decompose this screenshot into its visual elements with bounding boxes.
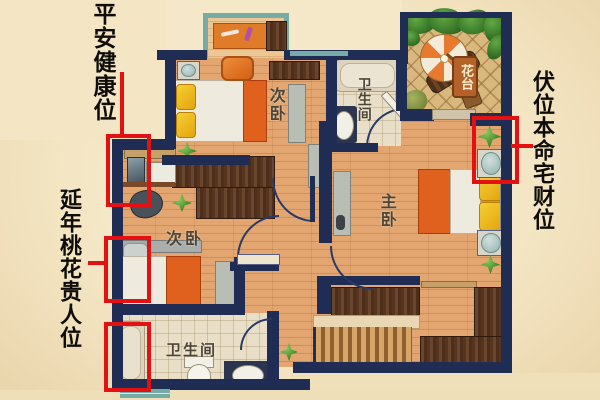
wall	[402, 12, 509, 18]
window	[290, 51, 348, 56]
annotation-box-romance-2	[104, 322, 151, 392]
feng-shui-floorplan-image: 次卧 次卧 主卧 卫生间 卫生间 花台 平安健康位 延年桃花贵人位 伏位本命宅财…	[0, 0, 600, 400]
balcony-wall	[203, 13, 289, 18]
wall	[165, 50, 176, 149]
wall	[112, 304, 245, 315]
room-label-bathroom-top: 卫生间	[356, 77, 371, 122]
railing	[421, 281, 477, 288]
wall	[317, 276, 331, 314]
toilet-bowl	[334, 111, 354, 140]
dresser-knob	[336, 215, 345, 230]
desk	[196, 187, 275, 219]
bed-pillow	[176, 84, 196, 110]
callout-top-left: 平安健康位	[90, 2, 113, 122]
balcony-cabinet	[266, 21, 287, 51]
annotation-box-wealth	[472, 116, 519, 184]
wall	[162, 155, 250, 165]
room-label-bathroom-bottom: 卫生间	[166, 343, 217, 359]
window	[120, 394, 170, 398]
callout-right: 伏位本命宅财位	[530, 70, 552, 231]
door-leaf	[237, 254, 280, 265]
room-label-bedroom-top: 次卧	[267, 87, 284, 123]
room-label-bedroom-left: 次卧	[166, 231, 204, 248]
outside-area	[0, 390, 600, 400]
cabinet	[288, 84, 306, 143]
bed-pillow	[176, 112, 196, 138]
wall	[501, 12, 512, 373]
room-label-master: 主卧	[378, 193, 395, 229]
annotation-connector	[120, 72, 124, 134]
wall	[400, 12, 408, 64]
wardrobe	[269, 61, 320, 80]
wall	[319, 121, 332, 243]
callout-mid-left: 延年桃花贵人位	[57, 188, 79, 349]
annotation-box-romance	[104, 236, 151, 303]
outside-area	[0, 0, 166, 140]
door-leaf	[310, 176, 315, 222]
master-bed-blanket	[418, 169, 452, 234]
armchair	[221, 56, 254, 81]
wall	[293, 362, 512, 373]
stair-banister	[331, 287, 420, 316]
bed-blanket	[243, 80, 267, 142]
terrace-label-badge: 花台	[452, 56, 478, 98]
annotation-connector	[88, 261, 105, 265]
nightstand	[177, 61, 200, 80]
staircase	[313, 327, 412, 366]
annotation-box-health	[106, 134, 151, 207]
